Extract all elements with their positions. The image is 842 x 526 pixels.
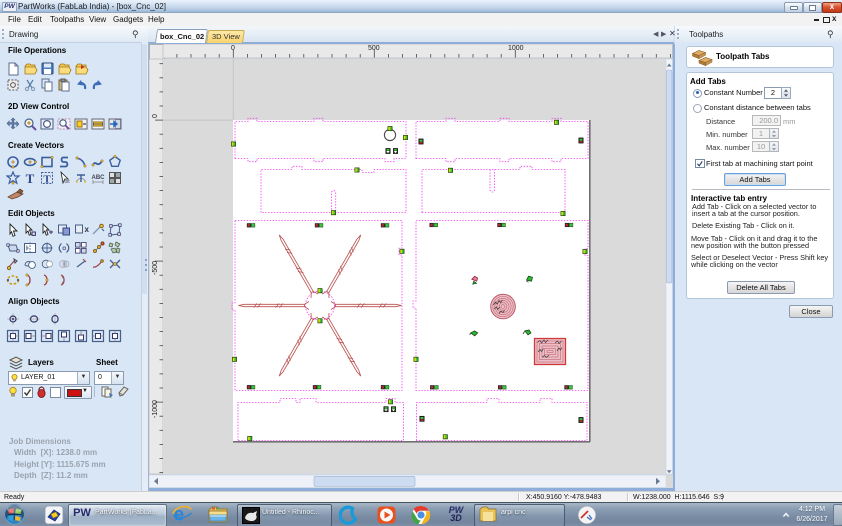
svg-text:0: 0 (231, 45, 235, 52)
svg-text:T: T (26, 171, 35, 185)
svg-text:500: 500 (368, 45, 380, 52)
svg-text:-1000: -1000 (152, 400, 159, 418)
svg-text:1000: 1000 (508, 45, 524, 52)
svg-text:0: 0 (152, 114, 159, 118)
svg-text:T: T (43, 174, 51, 186)
svg-text:x: x (85, 225, 90, 234)
svg-text:txt: txt (64, 179, 70, 185)
svg-text:-500: -500 (152, 261, 159, 275)
